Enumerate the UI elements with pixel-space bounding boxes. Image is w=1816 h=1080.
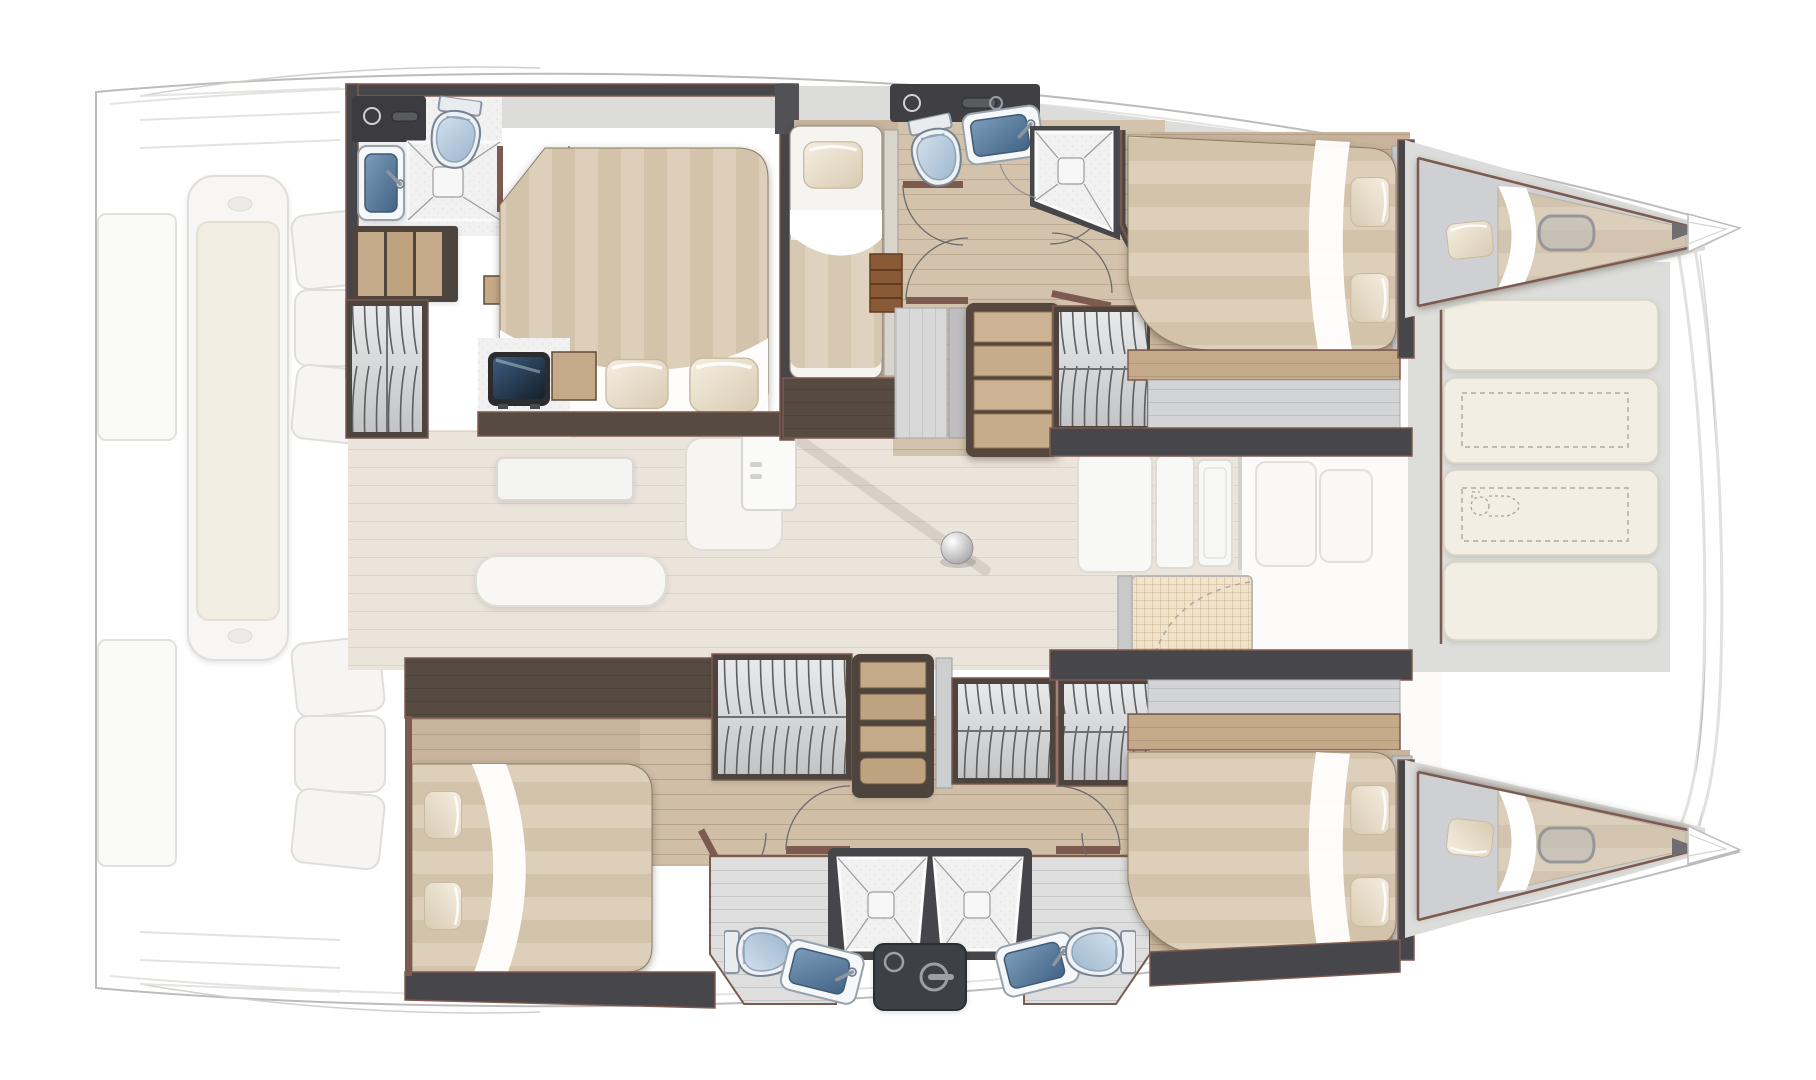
hanging-wardrobe-b <box>952 678 1056 784</box>
pillow <box>1351 274 1389 323</box>
gray-cabinets <box>895 308 969 438</box>
wall-counter-strip <box>478 412 790 436</box>
pillow <box>690 358 758 412</box>
center-lounge-seat <box>188 176 288 660</box>
wood-side-cabinet <box>552 352 596 400</box>
gray-bench <box>1148 680 1400 714</box>
wall-band <box>1050 428 1412 456</box>
pillow <box>1351 178 1389 227</box>
gray-bench <box>1148 380 1400 430</box>
double-bed <box>1128 136 1396 350</box>
wall-top <box>346 84 798 96</box>
sunpad-cushion-1 <box>1444 300 1658 370</box>
staircase <box>966 303 1060 457</box>
sunpad-cushion-2 <box>1444 378 1658 463</box>
sunpad-cushion-3 <box>1444 470 1658 555</box>
pillow <box>425 883 462 930</box>
shower-fwd <box>934 858 1022 950</box>
double-bed <box>412 764 652 972</box>
saloon <box>348 420 1242 670</box>
pillow <box>804 142 863 188</box>
floorplan-page <box>0 0 1816 1080</box>
curved-sofa-starboard <box>290 636 385 871</box>
transom-platform-starboard <box>98 640 176 866</box>
pillow <box>606 360 668 409</box>
sunpad-cushion-4 <box>1444 562 1658 640</box>
mast-foot-ball <box>941 532 973 564</box>
stbd-bathrooms <box>710 848 1150 1010</box>
pillow <box>425 792 462 839</box>
hull-portlight <box>1539 216 1594 250</box>
vanity-counter <box>352 96 426 142</box>
pillow <box>1351 878 1389 927</box>
floorplan-canvas <box>0 0 1816 1080</box>
shower-aft <box>838 858 926 950</box>
sofa <box>476 556 666 606</box>
narrow-cabinet <box>936 658 952 788</box>
dining-table <box>497 458 633 500</box>
wall-left-trim <box>405 716 412 976</box>
bench-module-2 <box>1320 470 1372 562</box>
transom-platform-port <box>98 214 176 440</box>
pillow <box>1351 786 1389 835</box>
washbasin <box>358 146 404 220</box>
technical-module <box>874 944 966 1010</box>
pillow <box>1446 220 1495 260</box>
wall-band <box>1050 650 1412 680</box>
galley-counter-slabs <box>1078 452 1232 572</box>
hanging-wardrobe <box>346 300 428 438</box>
single-berth <box>790 126 882 378</box>
shelf-unit <box>352 226 458 302</box>
double-bed <box>1128 752 1396 956</box>
hanging-wardrobe-a <box>712 654 852 780</box>
open-shelf-column <box>852 654 934 798</box>
toilet-fwd <box>1066 928 1136 976</box>
bench-module-1 <box>1256 462 1316 566</box>
